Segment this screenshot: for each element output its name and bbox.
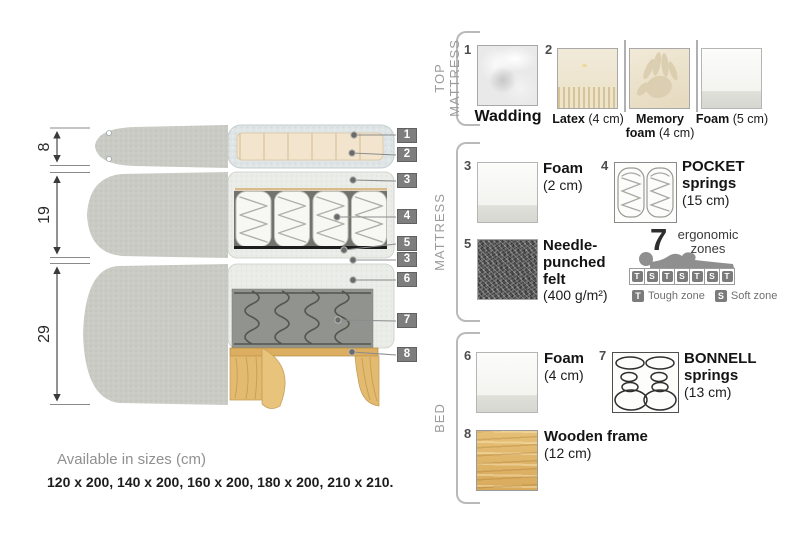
item-name: BONNELL springs [684,351,772,385]
zone-cell: T [659,268,675,285]
item-size: (13 cm) [684,385,772,401]
item-name: Latex [552,112,585,126]
available-sizes-list: 120 x 200, 140 x 200, 160 x 200, 180 x 2… [47,474,393,490]
callout-2: 2 [397,147,417,162]
zone-cell: S [674,268,690,285]
callout-1: 1 [397,128,417,143]
item-size: (5 cm) [733,112,768,126]
bonnell-springs-label: BONNELL springs (13 cm) [684,351,772,400]
zone-cell: S [704,268,720,285]
wadding-label: Wadding [462,108,554,126]
item-size: (4 cm) [588,112,623,126]
wadding-image [477,45,538,106]
hand-imprint-icon [630,49,689,108]
memory-foam-label: Memory foam (4 cm) [624,112,696,140]
item-number-5: 5 [464,236,471,251]
latex-label: Latex (4 cm) [545,112,631,126]
item-size: (400 g/m²) [543,288,625,304]
foam-2cm-image [477,162,538,223]
dimension-label-mattress: 19 [36,206,53,224]
mattress-construction-infographic: 8 19 29 1 2 3 4 5 [0,0,800,533]
bed-base-drawing [83,264,394,409]
option-divider [624,40,626,112]
ergonomic-word: ergonomic [676,228,740,242]
pocket-springs-label: POCKET springs (15 cm) [682,159,762,208]
item-size: (15 cm) [682,193,762,209]
foam-5cm-label: Foam (5 cm) [692,112,772,126]
item-size: (12 cm) [544,446,674,462]
item-number-1: 1 [464,42,471,57]
soft-zone-badge: S [715,290,727,302]
callout-3-top: 3 [397,173,417,188]
item-name: Foam [696,112,729,126]
zone-letter: T [662,271,673,282]
option-divider [696,40,698,112]
zone-letter: T [632,271,643,282]
section-label-bed: BED [432,363,448,473]
callout-4: 4 [397,209,417,224]
mattress-layer-drawing [87,172,394,258]
needle-felt-label: Needle-punched felt (400 g/m²) [543,238,625,304]
pocket-springs-image [614,162,677,223]
pocket-springs-icon [615,163,676,222]
zone-letter: S [677,271,688,282]
foam-4cm-image [476,352,538,413]
zone-cell: T [629,268,645,285]
item-number-6: 6 [464,348,471,363]
item-number-4: 4 [601,158,608,173]
foam-5cm-image [701,48,762,109]
memory-foam-image [629,48,690,109]
item-number-7: 7 [599,348,606,363]
tough-zone-badge: T [632,290,644,302]
zone-letter: T [722,271,733,282]
wooden-frame-image [476,430,538,491]
dimension-label-bed: 29 [36,325,53,343]
item-number-2: 2 [545,42,552,57]
item-name: Wooden frame [544,429,674,446]
latex-image [557,48,618,109]
soft-zone-label: Soft zone [731,290,777,302]
item-size: (2 cm) [543,178,613,194]
callout-7: 7 [397,313,417,328]
needle-felt-image [477,239,538,300]
tough-zone-label: Tough zone [648,290,705,302]
item-size: (4 cm) [544,368,614,384]
section-label-mattress: MATTRESS [432,177,448,287]
zone-cell: S [644,268,660,285]
item-size: (4 cm) [659,126,694,140]
zone-cell: T [689,268,705,285]
bonnell-springs-image [612,352,679,413]
zone-legend: T Tough zone S Soft zone [632,290,777,302]
dimension-arrows: 8 19 29 [36,128,90,405]
dimension-label-top-mattress: 8 [36,142,53,151]
wooden-frame-label: Wooden frame (12 cm) [544,429,674,461]
bonnell-springs-icon [613,353,678,412]
ergonomic-zones-row: T S T S T S T [630,268,735,285]
zone-letter: S [707,271,718,282]
zone-letter: T [692,271,703,282]
person-silhouette-icon [637,250,735,268]
callout-5: 5 [397,236,417,251]
item-name: Needle-punched felt [543,238,625,288]
section-label-top-mattress: TOP MATTRESS [432,23,448,133]
available-sizes-title: Available in sizes (cm) [57,451,206,468]
callout-6: 6 [397,272,417,287]
top-mattress-layer-drawing [95,125,394,168]
item-name: POCKET springs [682,159,762,193]
item-number-3: 3 [464,158,471,173]
zone-letter: S [647,271,658,282]
item-number-8: 8 [464,426,471,441]
zone-cell: T [719,268,735,285]
callout-8: 8 [397,347,417,362]
callout-3-bottom: 3 [397,252,417,267]
